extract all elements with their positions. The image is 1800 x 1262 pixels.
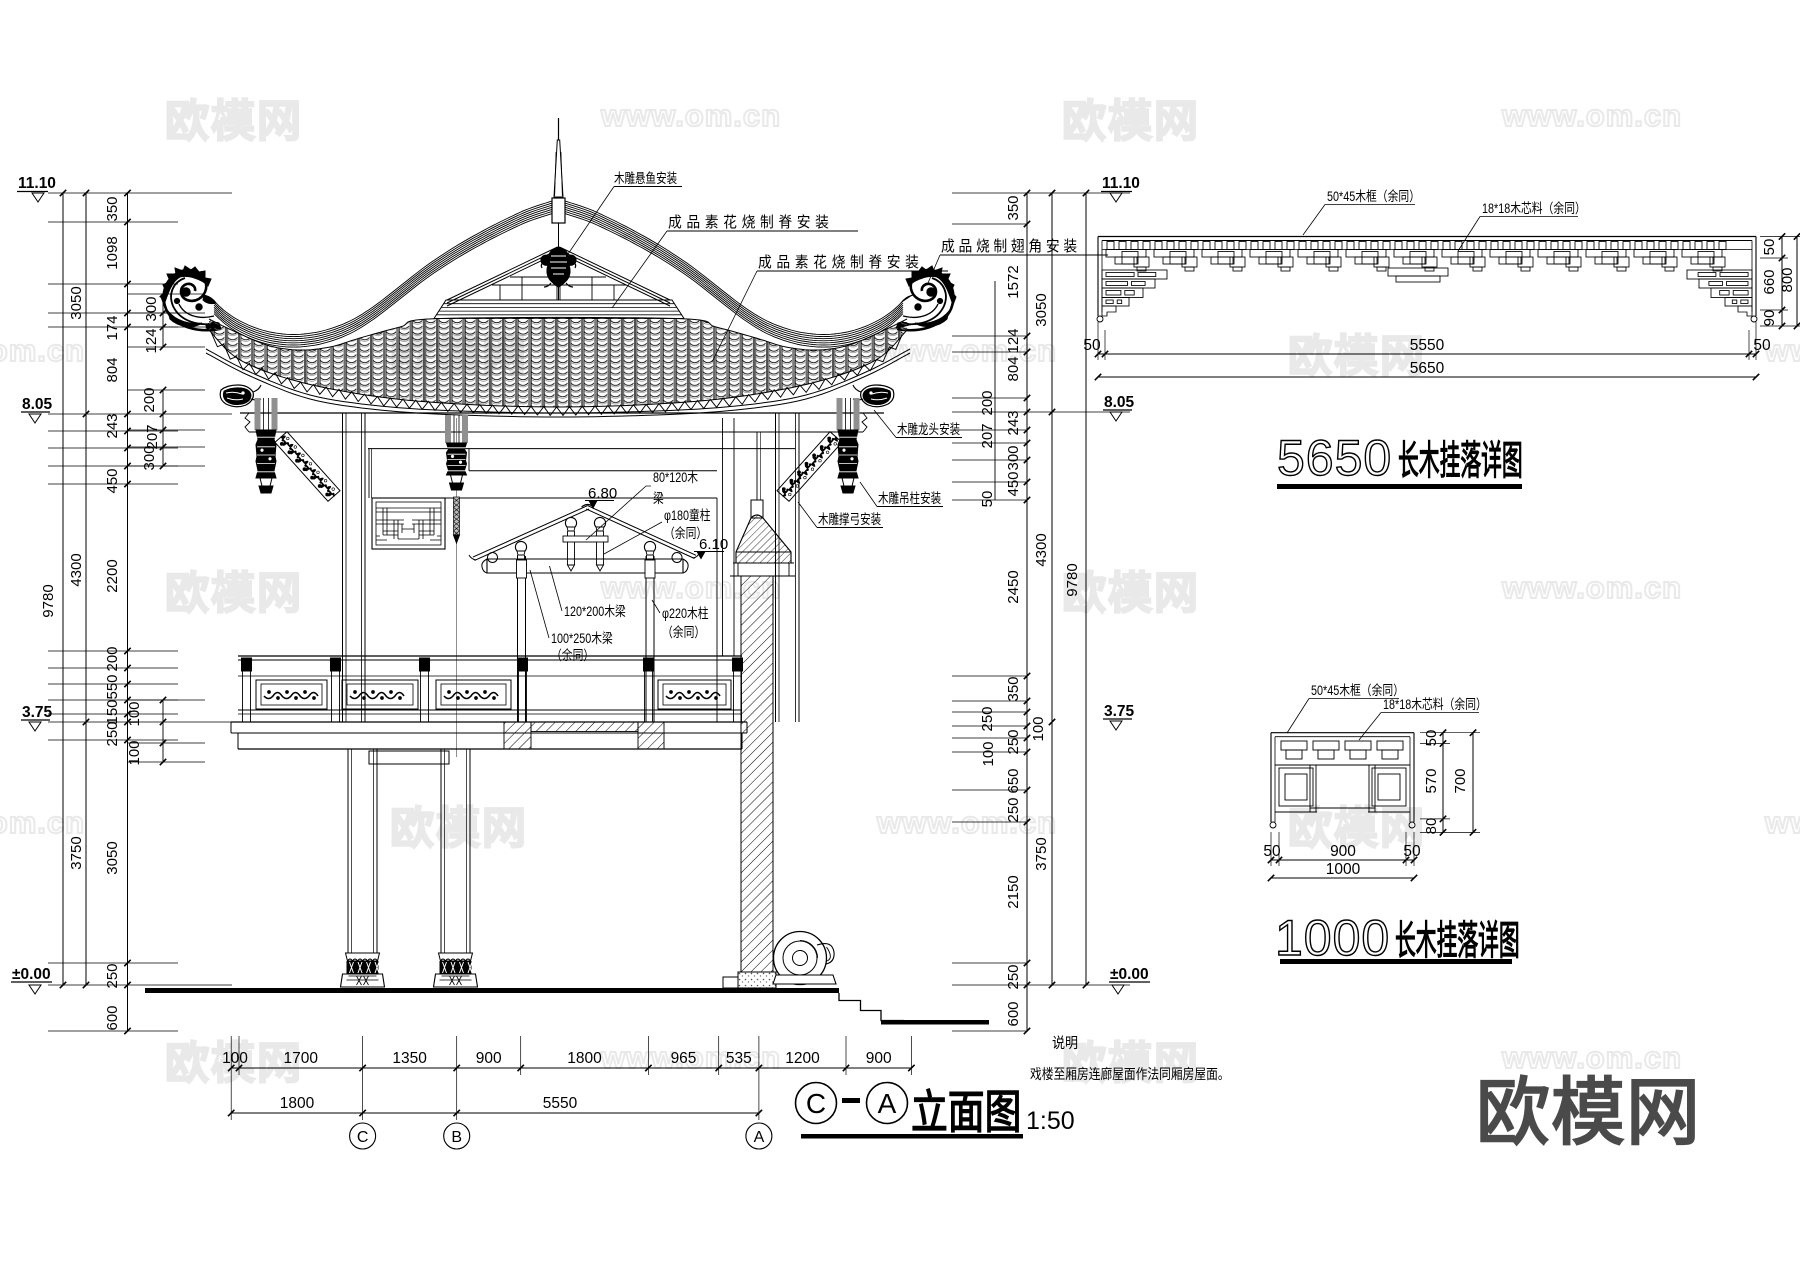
svg-text:A: A [878, 1088, 897, 1119]
svg-text:1800: 1800 [567, 1050, 602, 1067]
svg-text:φ180童柱: φ180童柱 [664, 507, 711, 524]
svg-text:4300: 4300 [1033, 533, 1050, 566]
svg-text:174: 174 [104, 315, 121, 340]
svg-text:804: 804 [1005, 356, 1022, 381]
svg-text:50: 50 [1403, 843, 1421, 860]
svg-text:1:50: 1:50 [1026, 1107, 1075, 1135]
svg-text:3750: 3750 [1033, 837, 1050, 870]
svg-text:（余同）: （余同） [551, 647, 594, 664]
svg-text:5650: 5650 [1277, 430, 1392, 486]
svg-text:1200: 1200 [785, 1050, 820, 1067]
svg-text:3750: 3750 [68, 836, 85, 869]
svg-text:4300: 4300 [68, 553, 85, 586]
svg-text:3050: 3050 [1033, 293, 1050, 326]
svg-text:C: C [806, 1088, 826, 1119]
svg-text:欧模网: 欧模网 [1062, 97, 1200, 146]
svg-text:1572: 1572 [1005, 265, 1022, 298]
svg-text:www.om.cn: www.om.cn [1501, 98, 1682, 133]
svg-text:3.75: 3.75 [1104, 703, 1135, 720]
svg-text:木雕悬鱼安装: 木雕悬鱼安装 [614, 170, 677, 187]
svg-text:3050: 3050 [68, 286, 85, 319]
svg-text:长木挂落详图: 长木挂落详图 [1395, 918, 1520, 963]
svg-text:www.om.cn: www.om.cn [1764, 805, 1800, 840]
svg-text:243: 243 [104, 413, 121, 438]
svg-text:戏楼至厢房连廊屋面作法同厢房屋面。: 戏楼至厢房连廊屋面作法同厢房屋面。 [1030, 1066, 1230, 1082]
svg-text:50: 50 [1761, 239, 1778, 256]
svg-text:535: 535 [726, 1050, 752, 1067]
svg-text:3050: 3050 [104, 841, 121, 874]
svg-text:80*120木: 80*120木 [653, 470, 698, 485]
svg-text:350: 350 [104, 196, 121, 221]
svg-text:11.10: 11.10 [18, 175, 56, 192]
svg-text:欧模网: 欧模网 [1062, 569, 1200, 618]
svg-text:550: 550 [104, 674, 121, 699]
svg-text:9780: 9780 [40, 584, 57, 617]
svg-text:（余同）: （余同） [662, 624, 705, 641]
svg-text:120*200木梁: 120*200木梁 [564, 603, 626, 620]
svg-text:11.10: 11.10 [1102, 175, 1140, 192]
svg-text:100: 100 [980, 741, 997, 766]
svg-text:100: 100 [222, 1050, 248, 1067]
svg-text:207: 207 [979, 423, 996, 448]
svg-text:立面图: 立面图 [911, 1086, 1021, 1138]
svg-text:450: 450 [1005, 471, 1022, 496]
svg-text:5550: 5550 [1410, 337, 1445, 354]
svg-text:欧模网: 欧模网 [165, 569, 303, 618]
svg-text:50*45木框（余同）: 50*45木框（余同） [1327, 188, 1420, 205]
svg-text:1000: 1000 [1326, 861, 1361, 878]
svg-text:φ220木柱: φ220木柱 [662, 605, 709, 622]
svg-text:250: 250 [1005, 797, 1022, 822]
svg-text:18*18木芯料（余同）: 18*18木芯料（余同） [1383, 696, 1487, 713]
svg-text:200: 200 [141, 387, 158, 412]
svg-text:660: 660 [1761, 269, 1778, 294]
svg-text:www.om.cn: www.om.cn [876, 805, 1057, 840]
svg-text:www.om.cn: www.om.cn [1501, 570, 1682, 605]
svg-text:欧模网: 欧模网 [1476, 1071, 1701, 1154]
svg-text:欧模网: 欧模网 [1288, 332, 1426, 381]
svg-text:成品素花烧制脊安装: 成品素花烧制脊安装 [668, 213, 834, 231]
svg-text:长木挂落详图: 长木挂落详图 [1398, 438, 1523, 483]
svg-text:300: 300 [143, 296, 160, 321]
svg-text:2150: 2150 [1005, 875, 1022, 908]
svg-text:300: 300 [141, 445, 158, 470]
svg-text:124: 124 [143, 328, 160, 353]
svg-text:1098: 1098 [104, 236, 121, 269]
svg-text:124: 124 [1005, 328, 1022, 353]
svg-text:5650: 5650 [1410, 360, 1445, 377]
svg-text:2450: 2450 [1005, 570, 1022, 603]
svg-text:欧模网: 欧模网 [390, 804, 528, 853]
svg-text:8.05: 8.05 [22, 396, 53, 413]
svg-text:450: 450 [104, 468, 121, 493]
svg-text:木雕撑弓安装: 木雕撑弓安装 [818, 511, 881, 528]
svg-text:5550: 5550 [543, 1095, 578, 1112]
svg-text:木雕吊柱安装: 木雕吊柱安装 [878, 490, 941, 507]
svg-text:8.05: 8.05 [1104, 394, 1135, 411]
svg-text:梁: 梁 [653, 490, 664, 507]
svg-text:9780: 9780 [1064, 563, 1081, 596]
svg-text:1800: 1800 [280, 1095, 315, 1112]
svg-text:80: 80 [1423, 818, 1440, 835]
svg-text:3.75: 3.75 [22, 704, 53, 721]
svg-text:900: 900 [1330, 843, 1356, 860]
svg-text:250: 250 [1005, 964, 1022, 989]
svg-text:700: 700 [1452, 768, 1469, 793]
svg-text:350: 350 [1005, 676, 1022, 701]
svg-text:250: 250 [104, 721, 121, 746]
svg-text:±0.00: ±0.00 [1110, 966, 1149, 983]
svg-text:100: 100 [1030, 716, 1047, 741]
svg-text:804: 804 [104, 357, 121, 382]
svg-text:成品烧制翅角安装: 成品烧制翅角安装 [941, 237, 1081, 255]
svg-text:90: 90 [1761, 310, 1778, 327]
svg-text:50: 50 [1263, 843, 1281, 860]
svg-text:900: 900 [866, 1050, 892, 1067]
svg-text:A: A [754, 1129, 765, 1146]
svg-text:www.om.cn: www.om.cn [876, 333, 1057, 368]
svg-text:18*18木芯料（余同）: 18*18木芯料（余同） [1482, 200, 1586, 217]
svg-text:1700: 1700 [284, 1050, 319, 1067]
svg-text:100*250木梁: 100*250木梁 [551, 630, 613, 647]
svg-text:800: 800 [1779, 267, 1796, 292]
svg-text:600: 600 [1005, 1001, 1022, 1026]
svg-text:说明: 说明 [1052, 1035, 1078, 1051]
svg-text:±0.00: ±0.00 [12, 966, 51, 983]
svg-text:243: 243 [1005, 410, 1022, 435]
svg-text:300: 300 [1005, 445, 1022, 470]
svg-text:www.om.cn: www.om.cn [600, 98, 781, 133]
svg-text:www.om.cn: www.om.cn [1501, 1040, 1682, 1075]
svg-text:150: 150 [104, 699, 121, 724]
svg-text:（余同）: （余同） [664, 525, 707, 542]
svg-text:250: 250 [1005, 729, 1022, 754]
svg-text:2200: 2200 [104, 559, 121, 592]
svg-text:1000: 1000 [1275, 910, 1390, 966]
svg-text:www.om.cn: www.om.cn [0, 805, 85, 840]
svg-text:B: B [451, 1129, 462, 1146]
svg-text:欧模网: 欧模网 [165, 97, 303, 146]
svg-text:350: 350 [1005, 195, 1022, 220]
svg-text:965: 965 [671, 1050, 697, 1067]
svg-text:900: 900 [476, 1050, 502, 1067]
svg-text:成品素花烧制脊安装: 成品素花烧制脊安装 [758, 253, 924, 271]
svg-text:250: 250 [979, 706, 996, 731]
svg-text:1350: 1350 [392, 1050, 427, 1067]
svg-text:50: 50 [1083, 337, 1101, 354]
svg-text:50: 50 [1423, 730, 1440, 747]
svg-text:6.80: 6.80 [588, 485, 617, 502]
svg-text:570: 570 [1423, 768, 1440, 793]
svg-text:600: 600 [104, 1005, 121, 1030]
svg-text:C: C [357, 1129, 369, 1146]
svg-text:50: 50 [1753, 337, 1771, 354]
svg-text:50: 50 [979, 491, 996, 508]
svg-text:木雕龙头安装: 木雕龙头安装 [897, 421, 960, 438]
svg-text:www.om.cn: www.om.cn [0, 333, 85, 368]
svg-text:50*45木框（余同）: 50*45木框（余同） [1311, 682, 1404, 699]
